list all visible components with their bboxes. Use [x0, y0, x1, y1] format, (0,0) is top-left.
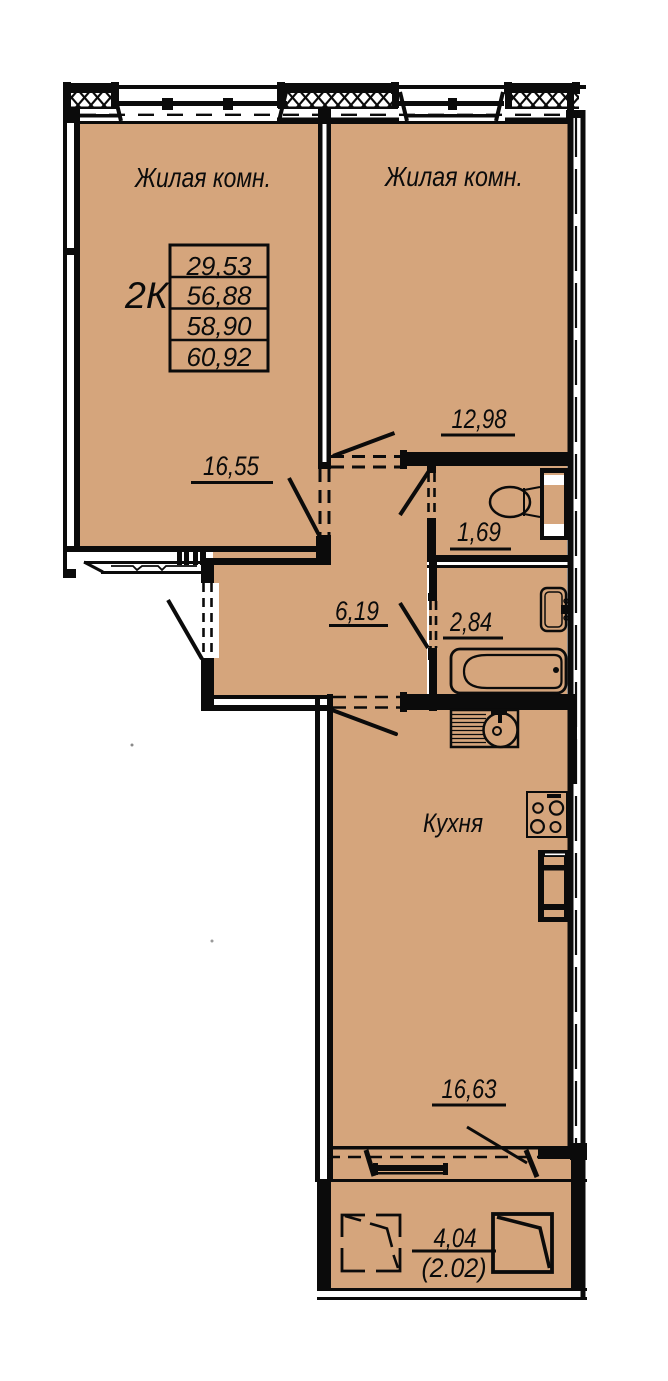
- svg-text:29,53: 29,53: [185, 251, 252, 281]
- svg-text:12,98: 12,98: [452, 404, 507, 434]
- svg-text:16,55: 16,55: [203, 451, 260, 481]
- svg-text:16,63: 16,63: [442, 1074, 497, 1104]
- svg-text:60,92: 60,92: [186, 342, 252, 372]
- svg-text:Кухня: Кухня: [423, 808, 483, 838]
- svg-text:2К: 2К: [124, 275, 170, 316]
- svg-text:Жилая комн.: Жилая комн.: [383, 161, 523, 192]
- svg-text:1,69: 1,69: [457, 517, 501, 547]
- svg-text:56,88: 56,88: [186, 281, 252, 311]
- svg-text:58,90: 58,90: [186, 311, 252, 341]
- svg-text:4,04: 4,04: [434, 1223, 477, 1253]
- svg-text:6,19: 6,19: [335, 596, 379, 626]
- svg-text:2,84: 2,84: [449, 607, 492, 637]
- svg-text:Жилая комн.: Жилая комн.: [133, 162, 271, 193]
- svg-text:(2.02): (2.02): [422, 1253, 487, 1283]
